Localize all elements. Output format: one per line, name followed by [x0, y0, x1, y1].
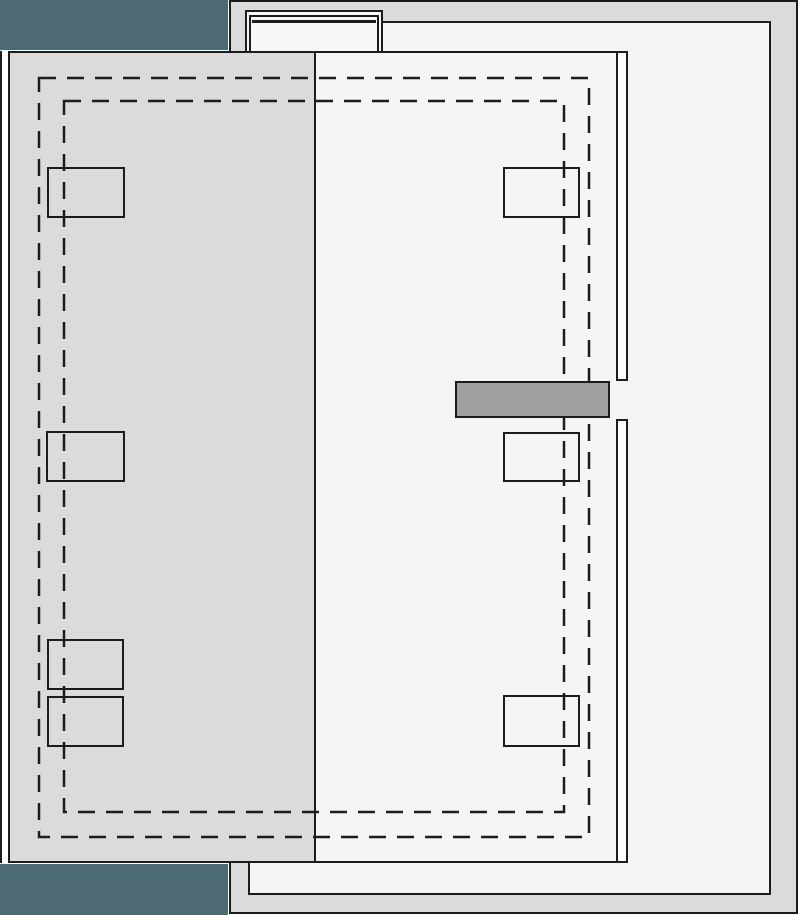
stair-bulkhead-inner-line	[252, 20, 376, 23]
adjacent-structure-edge-line	[0, 51, 2, 863]
skylight-right-2	[503, 432, 580, 482]
terrace-patch-top-left	[231, 21, 245, 53]
roof-edge-strip-upper	[616, 51, 628, 381]
skylight-right-3	[503, 695, 580, 747]
terrace-patch-bottom-left	[231, 863, 250, 895]
skylight-left-4	[47, 696, 124, 747]
teal-block-bottom	[0, 864, 228, 915]
teal-block-top	[0, 0, 228, 50]
skylight-right-1	[503, 167, 580, 218]
skylight-left-3	[47, 639, 124, 690]
equipment-bar	[455, 381, 610, 418]
roof-edge-strip-lower	[616, 419, 628, 863]
roof-plan-canvas	[0, 0, 800, 915]
skylight-left-2	[46, 431, 125, 482]
skylight-left-1	[47, 167, 125, 218]
main-roof-plane	[316, 51, 628, 863]
